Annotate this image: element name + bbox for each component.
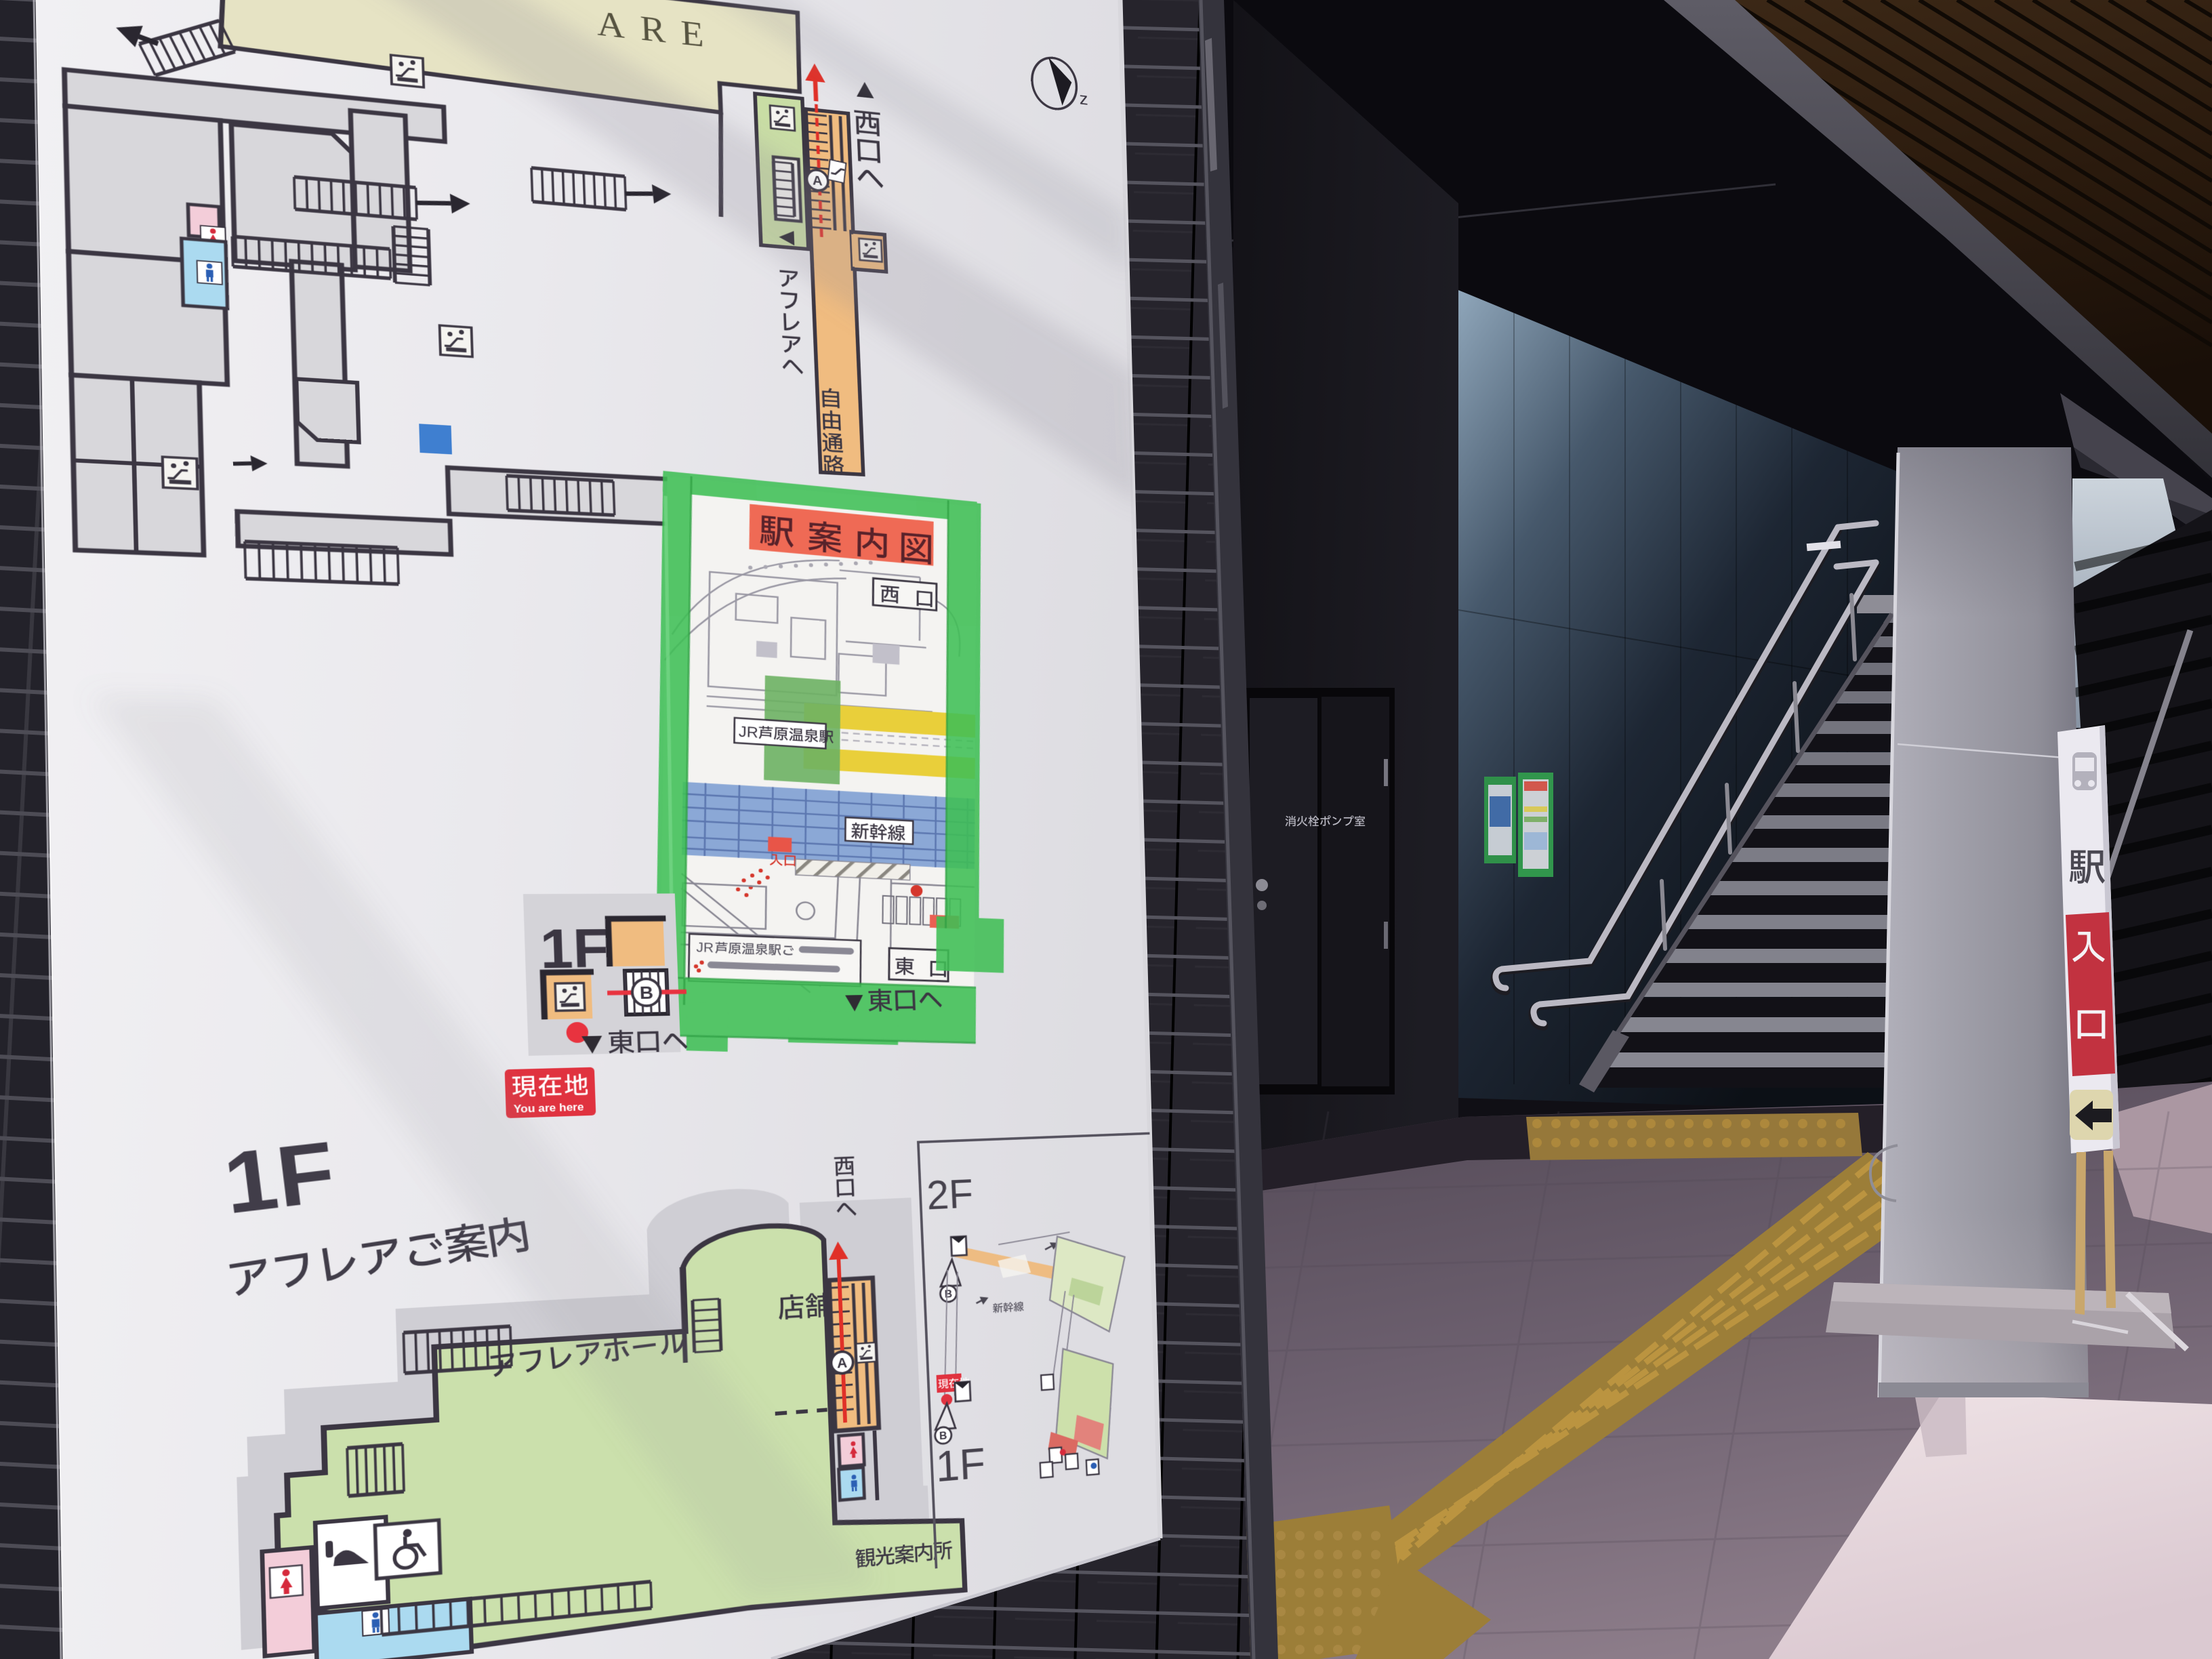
svg-text:JR: JR <box>696 940 714 956</box>
svg-text:B: B <box>939 1429 947 1441</box>
svg-text:1F: 1F <box>935 1439 986 1491</box>
svg-text:A: A <box>837 1355 848 1371</box>
svg-text:z: z <box>1079 88 1088 108</box>
svg-text:JR: JR <box>739 722 758 741</box>
svg-text:2F: 2F <box>926 1172 974 1218</box>
svg-text:1F: 1F <box>219 1123 340 1232</box>
svg-text:B: B <box>945 1288 953 1300</box>
svg-text:B: B <box>639 983 653 1003</box>
